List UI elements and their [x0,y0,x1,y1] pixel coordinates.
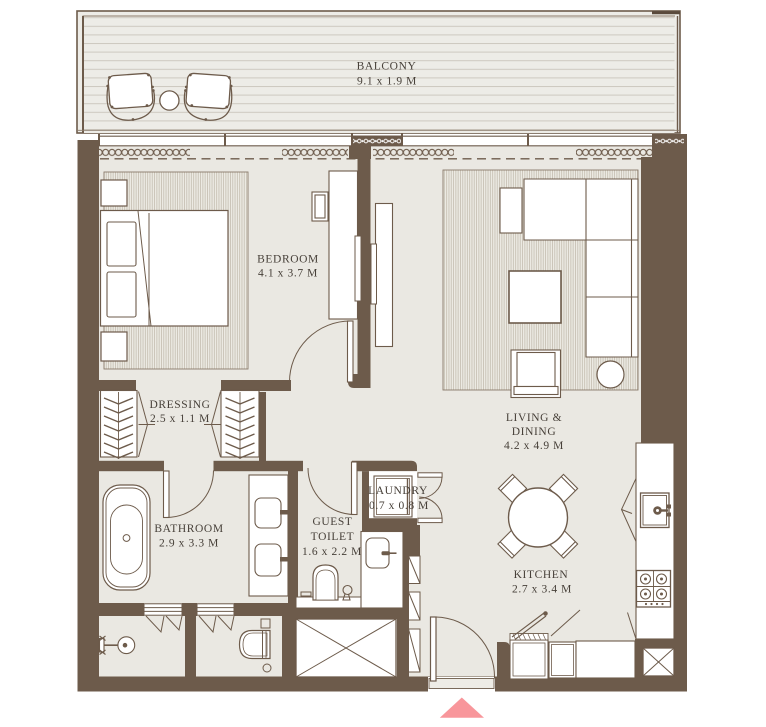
svg-text:2.7 x 3.4 M: 2.7 x 3.4 M [512,584,572,596]
svg-text:9.1 x 1.9 M: 9.1 x 1.9 M [357,76,417,88]
svg-text:4.2 x 4.9 M: 4.2 x 4.9 M [504,440,564,452]
svg-text:LAUNDRY: LAUNDRY [368,485,428,497]
svg-text:2.5 x 1.1 M: 2.5 x 1.1 M [150,413,210,425]
svg-text:2.9 x 3.3 M: 2.9 x 3.3 M [159,538,219,550]
svg-text:BEDROOM: BEDROOM [257,254,319,266]
svg-text:0.7 x 0.8 M: 0.7 x 0.8 M [369,500,429,512]
svg-text:LIVING &: LIVING & [506,412,562,424]
svg-text:DINING: DINING [512,426,556,438]
svg-text:1.6 x 2.2 M: 1.6 x 2.2 M [302,546,362,558]
svg-text:DRESSING: DRESSING [149,399,210,411]
svg-text:BALCONY: BALCONY [357,61,417,73]
svg-text:BATHROOM: BATHROOM [154,523,223,535]
svg-text:KITCHEN: KITCHEN [514,569,569,581]
svg-text:TOILET: TOILET [311,531,355,543]
svg-text:GUEST: GUEST [312,516,352,528]
svg-text:4.1 x 3.7 M: 4.1 x 3.7 M [258,268,318,280]
